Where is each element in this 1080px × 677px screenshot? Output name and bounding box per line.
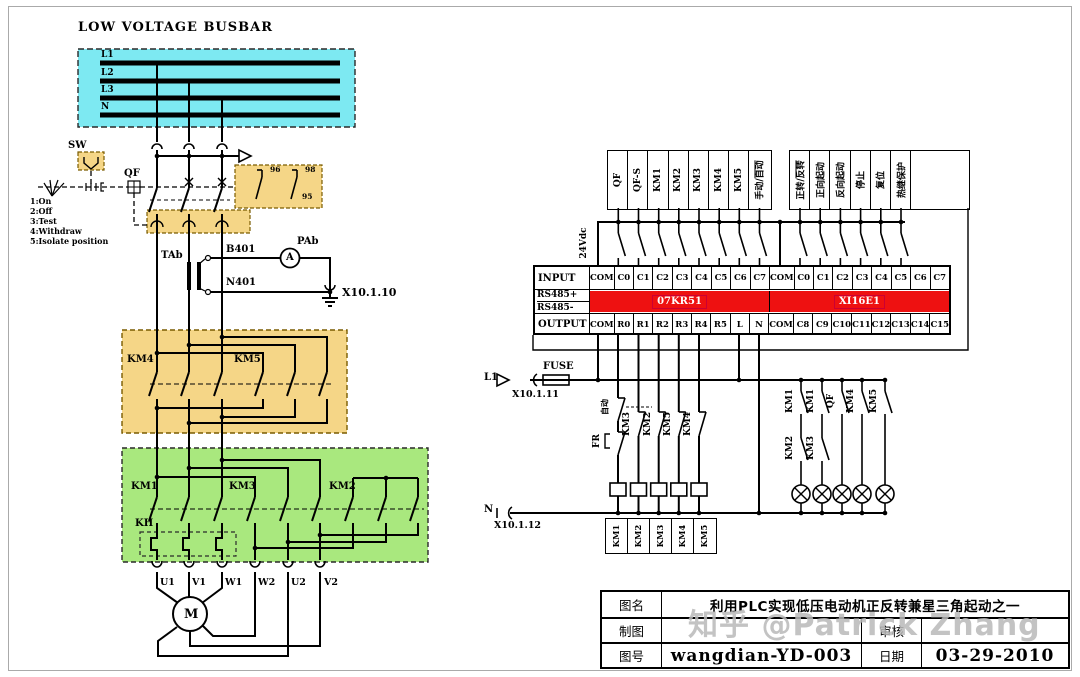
ammeter-a-glyph: A [286,253,294,263]
plc-input-terminal: C4 [692,267,711,289]
drawout-position-legend: 1:On2:Off3:Test4:Withdraw5:Isolate posit… [30,196,108,246]
plc-input-channel: KM3 [689,151,709,209]
plc-input-channel: QF-S [628,151,648,209]
motor-m-glyph: M [184,608,198,621]
motor-terminal-w2: W2 [258,578,275,588]
date-value: 03-29-2010 [922,644,1068,667]
watermark: 知乎 @Patrick Zhang [688,600,1041,644]
title-name-label: 图名 [602,592,662,617]
plc-left-input-box: QFQF-SKM1KM2KM3KM4KM5手动/自动 [607,150,772,210]
plc-output-terminal: C9 [813,314,832,335]
plc-output-terminal: C10 [832,314,852,335]
sw-label: SW [68,141,86,151]
n-feed-label: N [484,505,493,515]
plc-input-terminal: C5 [892,267,911,289]
qf-label: QF [124,169,140,179]
plc-right-input-box: 正转/反转正向起动反向起动停止复位热继保护 [789,150,970,210]
breaker-drawout-box [147,210,250,233]
current-transformer-icon [187,256,211,295]
busbar-n-label: N [101,103,109,112]
wire-b401-label: B401 [226,245,255,255]
plc-input-channel: 手动/自动 [749,151,769,209]
coil-label-cell: KM3 [650,519,672,553]
busbar-l1-label: L1 [101,51,114,60]
wiring-layer [0,0,1080,677]
plc-input-terminal: C0 [795,267,814,289]
plc-input-terminal: C7 [751,267,770,289]
plc-output-row-label: OUTPUT [535,314,590,335]
plc-input-terminal: C1 [634,267,653,289]
plc-input-channel: KM2 [669,151,689,209]
plc-module-left: 07KR51 [652,295,707,309]
plc-input-terminal: C5 [712,267,731,289]
km2-label: KM2 [329,482,356,492]
fuse-label: FUSE [543,362,574,372]
date-label: 日期 [862,644,922,667]
schematic-canvas: LOW VOLTAGE BUSBAR L1 L2 L3 N SW QF 1:On… [0,0,1080,677]
motor-terminal-w1: W1 [225,578,242,588]
plc-output-terminal: C8 [794,314,813,335]
plc-input-row-label: INPUT [535,267,590,289]
coil-label-cell: KM2 [628,519,650,553]
plc-rs485-labels: RS485+RS485- [535,290,590,313]
plc-output-terminal: N [750,314,769,335]
plc-input-channel: KM4 [709,151,729,209]
plc-output-terminal: C11 [852,314,872,335]
plc-input-terminal: C4 [872,267,891,289]
n-connector-ref: X10.1.12 [494,521,541,531]
coil-label-cell: KM4 [672,519,694,553]
plc-output-terminal: C13 [891,314,911,335]
aux-terminal-95: 95 [302,193,312,201]
plc-output-terminal: R4 [692,314,711,335]
motor-terminal-u1: U1 [160,578,175,588]
plc-input-terminal: C3 [673,267,692,289]
km3-label: KM3 [229,482,256,492]
plc-input-terminal: C3 [853,267,872,289]
plc-output-terminal: L [731,314,750,335]
ground-terminal-ref: X10.1.10 [342,287,396,298]
drafter-label: 制图 [602,619,662,642]
plc-output-terminal: C14 [911,314,931,335]
busbar-title: LOW VOLTAGE BUSBAR [78,21,273,34]
plc-input-terminal: C2 [833,267,852,289]
plc-input-terminal: C6 [731,267,750,289]
plc-input-channel: 反向起动 [830,151,850,209]
km5-label: KM5 [234,355,261,365]
plc-input-channel: KM5 [729,151,749,209]
sw-switch-box [78,152,104,170]
qf-position-indicator [128,181,140,193]
ammeter-name-label: PAb [297,237,319,247]
km4-label: KM4 [127,355,154,365]
feeder-arrow-icon [239,150,251,162]
plc-output-terminal: R1 [634,314,653,335]
plc-input-channel: 正向起动 [810,151,830,209]
plc-output-terminal: R3 [673,314,692,335]
wire-n401-label: N401 [226,278,256,288]
plc-input-terminal: C1 [814,267,833,289]
plc-input-channel: QF [608,151,628,209]
motor-terminal-v2: V2 [324,578,338,588]
plc-input-channel: 复位 [871,151,891,209]
l1-connector-ref: X10.1.11 [512,390,559,400]
plc-output-terminal: COM [590,314,615,335]
plc-output-terminal: R5 [711,314,730,335]
plc-output-terminal: R2 [653,314,672,335]
aux-terminal-96: 96 [270,166,280,174]
busbar-l3-label: L3 [101,86,114,95]
ct-label: TAb [161,251,183,261]
plc-module-band: 07KR51 XI16E1 [590,290,949,313]
plc-output-terminal: C15 [930,314,949,335]
motor-terminal-u2: U2 [291,578,306,588]
plc-input-terminal: C0 [615,267,634,289]
plc-input-terminal: COM [590,267,615,289]
plc-output-terminal: C12 [872,314,892,335]
plc-output-terminal: R0 [615,314,634,335]
number-value: wangdian-YD-003 [662,644,862,667]
busbar-l2-label: L2 [101,69,114,78]
plc-input-terminal: C7 [931,267,949,289]
plc-input-channel: 停止 [851,151,871,209]
plc-output-terminal: COM [769,314,794,335]
plc-input-channel: 正转/反转 [790,151,810,209]
motor-terminal-v1: V1 [192,578,206,588]
coil-label-cell: KM5 [694,519,716,553]
plc-input-terminal: C6 [911,267,930,289]
km1-label: KM1 [131,482,158,492]
kh-label: KH [135,519,153,529]
plc-input-terminal: C2 [653,267,672,289]
plc-input-channel: KM1 [648,151,668,209]
coil-label-box: KM1KM2KM3KM4KM5 [605,518,717,554]
plc-input-box-spare [911,151,969,209]
plc-terminal-table: INPUT COMC0C1C2C3C4C5C6C7COMC0C1C2C3C4C5… [533,265,951,335]
l1-arrow-icon [497,374,509,386]
plc-input-terminal: COM [770,267,795,289]
star-delta-zone [122,448,428,562]
coil-label-cell: KM1 [606,519,628,553]
l1-feed-label: L1 [484,373,498,383]
plc-input-channel: 热继保护 [891,151,911,209]
plc-module-right: XI16E1 [834,295,885,309]
number-label: 图号 [602,644,662,667]
aux-terminal-98: 98 [305,166,315,174]
